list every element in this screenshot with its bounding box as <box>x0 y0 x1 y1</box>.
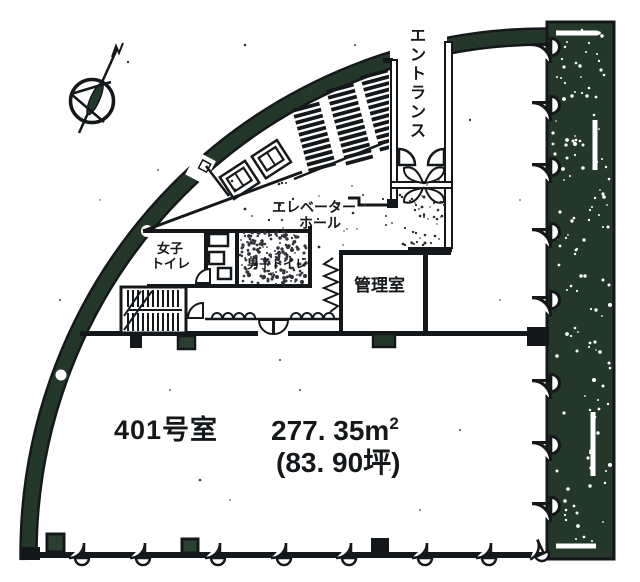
svg-text:エレベーター: エレベーター <box>272 199 356 215</box>
svg-text:管理室: 管理室 <box>354 275 405 295</box>
svg-text:277. 35m2: 277. 35m2 <box>271 414 399 446</box>
svg-text:ラ: ラ <box>410 85 426 102</box>
svg-text:トイレ: トイレ <box>151 256 190 271</box>
svg-text:401号室: 401号室 <box>114 414 218 445</box>
svg-text:(83. 90坪): (83. 90坪) <box>276 447 401 478</box>
svg-text:男子トイレ: 男子トイレ <box>247 257 307 271</box>
svg-text:ン: ン <box>410 47 426 64</box>
svg-text:エ: エ <box>410 28 426 45</box>
svg-text:ス: ス <box>410 123 426 140</box>
svg-text:ト: ト <box>410 66 426 83</box>
svg-text:ン: ン <box>410 104 426 121</box>
svg-text:ホール: ホール <box>299 215 341 231</box>
svg-text:女子: 女子 <box>157 241 183 256</box>
